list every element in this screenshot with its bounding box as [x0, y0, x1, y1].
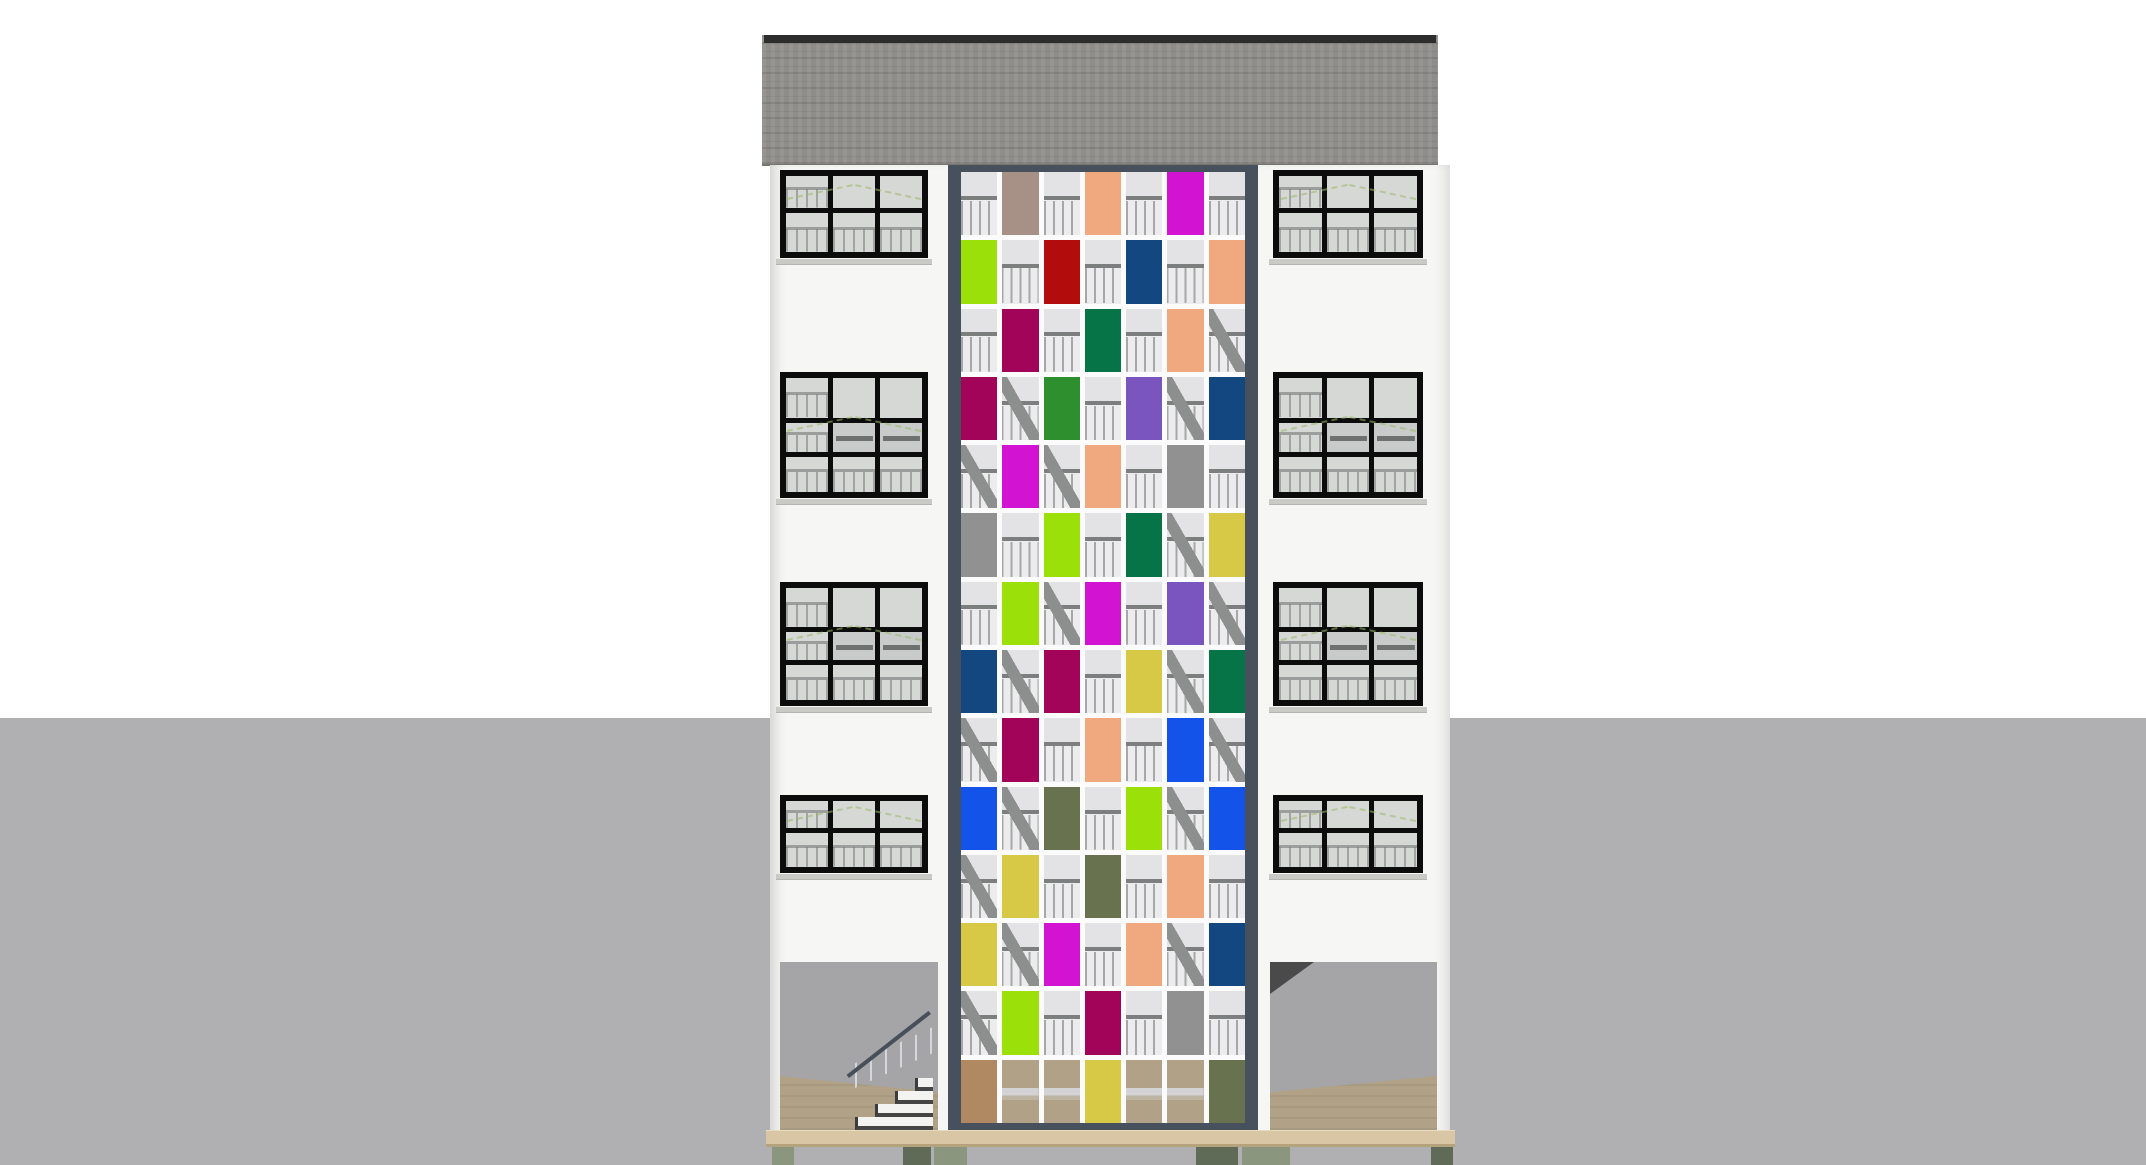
window-pane	[833, 213, 875, 252]
window-panes	[786, 588, 922, 700]
window-pane	[1279, 213, 1322, 252]
grid-cell-r14c3	[1044, 1060, 1080, 1123]
window-pane	[880, 833, 922, 867]
grid-cell-r9c5	[1126, 718, 1162, 781]
grid-cell-r13c7	[1209, 991, 1245, 1054]
window-pane	[1279, 632, 1322, 661]
grid-cell-r1c2	[1002, 172, 1038, 235]
grid-cell-r1c7	[1209, 172, 1245, 235]
foundation-pier	[903, 1147, 931, 1165]
window-pane	[786, 378, 828, 418]
grid-cell-r9c2	[1002, 718, 1038, 781]
grid-cell-r2c4	[1085, 240, 1121, 303]
window-pane	[1279, 176, 1322, 208]
stair-step	[895, 1091, 933, 1104]
grid-cell-r5c1	[961, 445, 997, 508]
window-row3	[1273, 582, 1423, 706]
grid-cell-r3c7	[1209, 309, 1245, 372]
window-pane	[1327, 665, 1370, 700]
grid-cell-r2c3	[1044, 240, 1080, 303]
window-pane	[833, 423, 875, 452]
window-pane	[1279, 457, 1322, 492]
grid-cell-r6c2	[1002, 513, 1038, 576]
grid-cell-r6c1	[961, 513, 997, 576]
window-pane	[1374, 588, 1417, 627]
grid-cell-r4c4	[1085, 377, 1121, 440]
window-row4	[780, 795, 928, 873]
window-pane	[833, 801, 875, 828]
grid-cell-r10c2	[1002, 787, 1038, 850]
grid-cell-r6c7	[1209, 513, 1245, 576]
window-pane	[880, 801, 922, 828]
grid-cell-r10c4	[1085, 787, 1121, 850]
grid-cell-r14c7	[1209, 1060, 1245, 1123]
window-pane	[1374, 176, 1417, 208]
grid-cell-r12c7	[1209, 923, 1245, 986]
grid-cell-r11c4	[1085, 855, 1121, 918]
ground-opening-left	[780, 962, 938, 1130]
window-sill	[776, 499, 932, 505]
grid-cell-r2c5	[1126, 240, 1162, 303]
grid-cell-r11c6	[1167, 855, 1203, 918]
grid-cell-r6c6	[1167, 513, 1203, 576]
window-pane	[833, 665, 875, 700]
stair-shadow	[1270, 962, 1314, 994]
window-pane	[880, 665, 922, 700]
window-row2	[1273, 372, 1423, 498]
grid-cell-r10c7	[1209, 787, 1245, 850]
grid-cell-r8c4	[1085, 650, 1121, 713]
grid-cell-r11c7	[1209, 855, 1245, 918]
window-pane	[786, 213, 828, 252]
window-pane	[1374, 833, 1417, 867]
window-pane	[880, 176, 922, 208]
window-sill	[776, 707, 932, 713]
window-pane	[880, 588, 922, 627]
grid-cell-r5c5	[1126, 445, 1162, 508]
grid-cell-r5c3	[1044, 445, 1080, 508]
grid-cell-r1c4	[1085, 172, 1121, 235]
window-pane	[880, 457, 922, 492]
wood-floor	[1270, 1076, 1437, 1130]
window-pane	[833, 378, 875, 418]
grid-cell-r3c1	[961, 309, 997, 372]
grid-cell-r11c3	[1044, 855, 1080, 918]
window-pane	[1327, 801, 1370, 828]
window-pane	[786, 588, 828, 627]
grid-cell-r6c5	[1126, 513, 1162, 576]
window-pane	[786, 665, 828, 700]
window-pane	[1374, 632, 1417, 661]
window-pane	[786, 423, 828, 452]
grid-cell-r12c2	[1002, 923, 1038, 986]
window-pane	[833, 632, 875, 661]
grid-cell-r13c4	[1085, 991, 1121, 1054]
window-pane	[1374, 457, 1417, 492]
grid-cell-r14c5	[1126, 1060, 1162, 1123]
window-pane	[786, 632, 828, 661]
window-sill	[1269, 707, 1427, 713]
grid-cell-r8c1	[961, 650, 997, 713]
grid-cell-r3c6	[1167, 309, 1203, 372]
grid-cell-r5c7	[1209, 445, 1245, 508]
grid-cell-r8c7	[1209, 650, 1245, 713]
window-row4	[1273, 795, 1423, 873]
roof-ridge	[764, 35, 1436, 43]
window-pane	[786, 801, 828, 828]
grid-cell-r9c4	[1085, 718, 1121, 781]
window-pane	[1279, 588, 1322, 627]
stair-step	[855, 1117, 933, 1130]
stair-step	[875, 1104, 933, 1117]
window-row3	[780, 582, 928, 706]
window-row2	[780, 372, 928, 498]
grid-cell-r4c7	[1209, 377, 1245, 440]
window-panes	[1279, 176, 1417, 252]
grid-cell-r11c5	[1126, 855, 1162, 918]
grid-cell-r2c2	[1002, 240, 1038, 303]
window-pane	[1279, 423, 1322, 452]
window-pane	[1374, 423, 1417, 452]
grid-cell-r6c3	[1044, 513, 1080, 576]
grid-cell-r12c4	[1085, 923, 1121, 986]
window-pane	[1327, 632, 1370, 661]
grid-cell-r1c1	[961, 172, 997, 235]
window-pane	[833, 588, 875, 627]
window-panes	[1279, 378, 1417, 492]
foundation-pier	[1431, 1147, 1453, 1165]
window-pane	[786, 176, 828, 208]
grid-cell-r8c6	[1167, 650, 1203, 713]
grid-cell-r3c3	[1044, 309, 1080, 372]
grid-cell-r8c5	[1126, 650, 1162, 713]
grid-cell-r8c2	[1002, 650, 1038, 713]
window-pane	[1327, 423, 1370, 452]
grid-cell-r13c1	[961, 991, 997, 1054]
window-pane	[1374, 665, 1417, 700]
stair-step	[915, 1078, 933, 1091]
grid-cell-r4c6	[1167, 377, 1203, 440]
elevation-scene	[0, 0, 2146, 1165]
grid-cell-r10c6	[1167, 787, 1203, 850]
grid-cell-r9c1	[961, 718, 997, 781]
window-pane	[1327, 213, 1370, 252]
grid-cell-r8c3	[1044, 650, 1080, 713]
grid-cell-r5c4	[1085, 445, 1121, 508]
grid-cell-r3c4	[1085, 309, 1121, 372]
window-pane	[833, 833, 875, 867]
grid-cell-r13c3	[1044, 991, 1080, 1054]
grid-cell-r9c7	[1209, 718, 1245, 781]
grid-cell-r10c5	[1126, 787, 1162, 850]
grid-cell-r4c3	[1044, 377, 1080, 440]
grid-cell-r1c6	[1167, 172, 1203, 235]
window-row1	[780, 170, 928, 258]
grid-cell-r7c2	[1002, 582, 1038, 645]
window-pane	[833, 176, 875, 208]
foundation-pier	[1196, 1147, 1238, 1165]
window-pane	[880, 423, 922, 452]
window-panes	[1279, 588, 1417, 700]
grid-cell-r13c2	[1002, 991, 1038, 1054]
window-sill	[1269, 499, 1427, 505]
window-panes	[786, 378, 922, 492]
grid-cell-r4c5	[1126, 377, 1162, 440]
grid-cell-r2c6	[1167, 240, 1203, 303]
window-pane	[880, 378, 922, 418]
grid-cell-r4c2	[1002, 377, 1038, 440]
grid-cell-r4c1	[961, 377, 997, 440]
grid-cell-r7c4	[1085, 582, 1121, 645]
grid-cell-r14c2	[1002, 1060, 1038, 1123]
window-pane	[1374, 801, 1417, 828]
grid-cell-r13c6	[1167, 991, 1203, 1054]
grid-cell-r14c1	[961, 1060, 997, 1123]
window-pane	[1327, 176, 1370, 208]
window-sill	[1269, 874, 1427, 880]
grid-cell-r12c5	[1126, 923, 1162, 986]
grid-cell-r2c1	[961, 240, 997, 303]
grid-cell-r11c1	[961, 855, 997, 918]
window-panes	[786, 801, 922, 867]
foundation-pier	[934, 1147, 967, 1165]
grid-cell-r7c5	[1126, 582, 1162, 645]
window-pane	[1327, 833, 1370, 867]
grid-cell-r6c4	[1085, 513, 1121, 576]
grid-cell-r3c2	[1002, 309, 1038, 372]
grid-cell-r1c3	[1044, 172, 1080, 235]
grid-cell-r9c6	[1167, 718, 1203, 781]
window-pane	[833, 457, 875, 492]
grid-cell-r7c1	[961, 582, 997, 645]
grid-cell-r12c1	[961, 923, 997, 986]
window-pane	[1279, 378, 1322, 418]
grid-cell-r5c2	[1002, 445, 1038, 508]
window-row1	[1273, 170, 1423, 258]
grid-cell-r5c6	[1167, 445, 1203, 508]
grid-cell-r7c3	[1044, 582, 1080, 645]
window-sill	[776, 259, 932, 265]
exterior-stair	[855, 995, 935, 1130]
grid-cell-r9c3	[1044, 718, 1080, 781]
ground-opening-right	[1270, 962, 1437, 1130]
grid-cell-r10c3	[1044, 787, 1080, 850]
foundation-pier	[772, 1147, 794, 1165]
window-pane	[1279, 801, 1322, 828]
grid-cell-r12c3	[1044, 923, 1080, 986]
window-pane	[1279, 833, 1322, 867]
roof	[762, 35, 1438, 166]
grid-cell-r3c5	[1126, 309, 1162, 372]
stair-shaft	[948, 165, 1258, 1133]
grid-cell-r7c7	[1209, 582, 1245, 645]
window-pane	[1279, 665, 1322, 700]
window-pane	[1327, 457, 1370, 492]
foundation-pier	[1242, 1147, 1290, 1165]
window-pane	[1327, 378, 1370, 418]
window-panes	[1279, 801, 1417, 867]
grid-cell-r13c5	[1126, 991, 1162, 1054]
grid-cell-r1c5	[1126, 172, 1162, 235]
window-pane	[786, 457, 828, 492]
window-pane	[1374, 378, 1417, 418]
window-pane	[1327, 588, 1370, 627]
grid-cell-r14c4	[1085, 1060, 1121, 1123]
window-pane	[786, 833, 828, 867]
grid-cell-r14c6	[1167, 1060, 1203, 1123]
grid-cell-r10c1	[961, 787, 997, 850]
panel-grid	[961, 172, 1245, 1123]
window-pane	[1374, 213, 1417, 252]
grid-cell-r7c6	[1167, 582, 1203, 645]
building-facade	[770, 165, 1450, 1135]
window-pane	[880, 213, 922, 252]
ground-slab	[766, 1130, 1455, 1147]
window-pane	[880, 632, 922, 661]
window-sill	[776, 874, 932, 880]
grid-cell-r11c2	[1002, 855, 1038, 918]
window-panes	[786, 176, 922, 252]
grid-cell-r2c7	[1209, 240, 1245, 303]
grid-cell-r12c6	[1167, 923, 1203, 986]
window-sill	[1269, 259, 1427, 265]
